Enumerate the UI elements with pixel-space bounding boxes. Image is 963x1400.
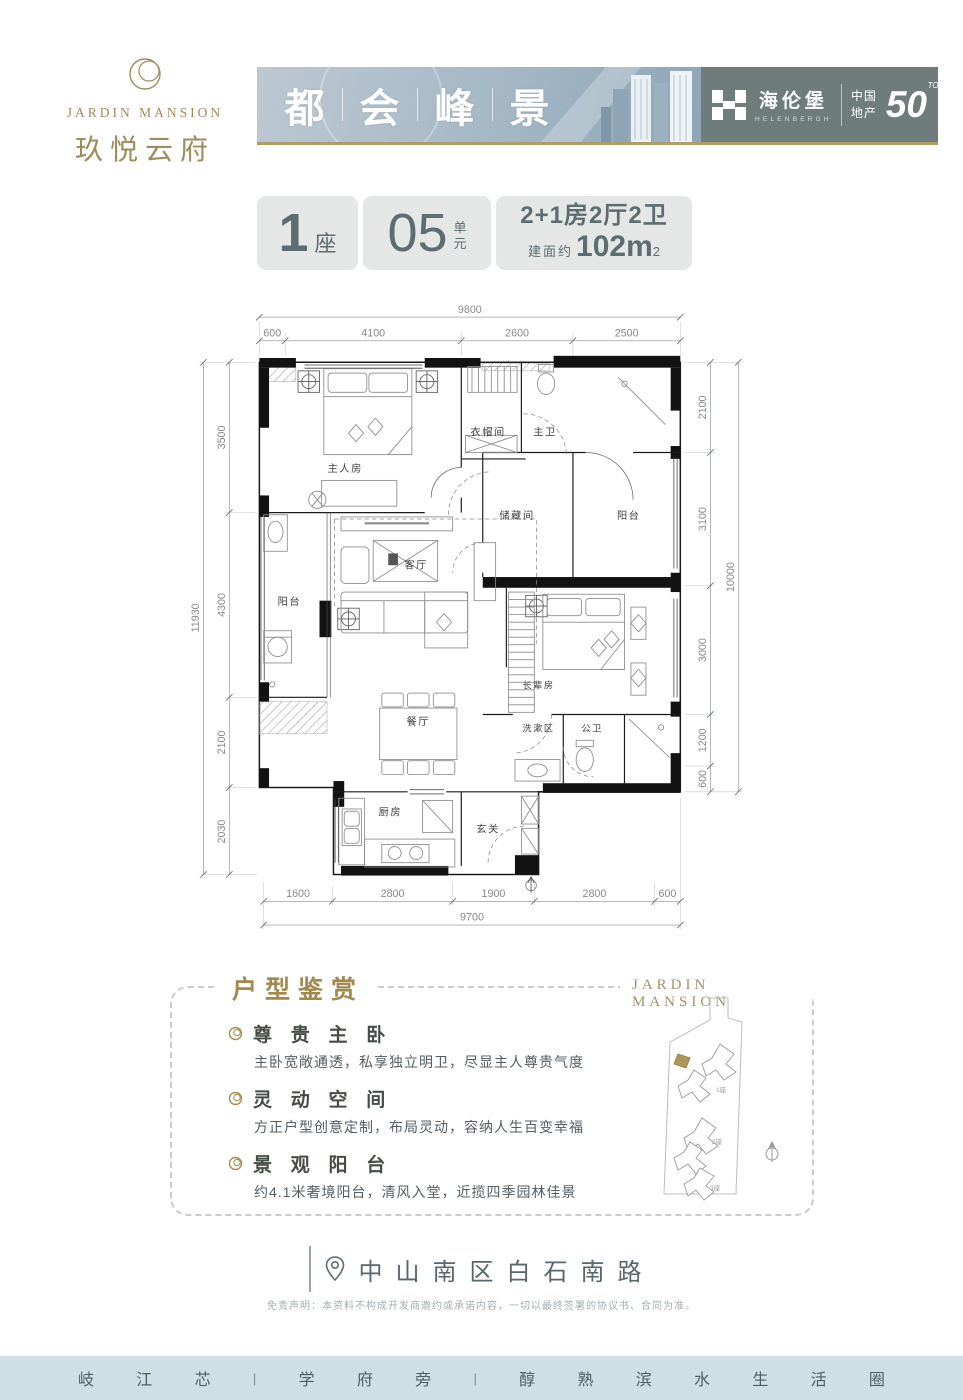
- logo-rings-icon: [122, 54, 168, 96]
- dim-left-total: 11930: [190, 603, 202, 632]
- block-label: 座: [315, 226, 337, 258]
- area-prefix: 建面约: [528, 245, 573, 260]
- room-label-master-bath: 主卫: [533, 426, 557, 438]
- feature-item: 灵 动 空 间 方正户型创意定制，布局灵动，容纳人生百变幸福: [228, 1085, 648, 1137]
- feature-item: 尊 贵 主 卧 主卧宽敞通透，私享独立明卫，尽显主人尊贵气度: [228, 1020, 648, 1072]
- address-text: 中山南区白石南路: [359, 1252, 655, 1287]
- unit-label: 单 元: [454, 220, 467, 253]
- disclaimer: 免责声明：本资料不构成开发商邀约或承诺内容，一切以最终签署的协议书、合同为准。: [0, 1297, 963, 1312]
- feature-desc: 约4.1米奢境阳台，清风入堂，近揽四季园林佳景: [254, 1182, 648, 1202]
- dim-top-total: 9800: [458, 304, 482, 316]
- dim-top-seg: 2600: [505, 328, 529, 340]
- dim-right-seg: 3100: [697, 507, 709, 531]
- dim-bottom-seg: 600: [658, 888, 676, 900]
- room-label-elder: 长辈房: [522, 680, 554, 691]
- feature-heading: 灵 动 空 间: [253, 1085, 392, 1112]
- brand-name-cn: 玖悦云府: [38, 128, 252, 168]
- helenbergh-logo-icon: [712, 88, 746, 122]
- banner-char: 景: [510, 76, 550, 134]
- dim-right-seg: 600: [697, 770, 709, 788]
- dim-left-seg: 3500: [216, 425, 228, 449]
- tagline-char: 圈: [869, 1366, 885, 1390]
- area-line: 建面约 102m 2: [528, 230, 660, 265]
- building-label: 2座: [712, 1137, 723, 1146]
- tagline-char: 芯: [195, 1366, 211, 1390]
- unit-badge: 05 单 元: [363, 196, 491, 270]
- floor-plan: 9800 600 4100 2600 2500 1600 2800 1900 2…: [182, 300, 762, 945]
- dim-bottom-seg: 1900: [482, 888, 506, 900]
- top50-mark: 50 TOP: [886, 86, 927, 123]
- block-badge: 1 座: [257, 196, 358, 270]
- developer-badge: 海伦堡 HELENBERGH 中国 地产 50 TOP: [701, 67, 938, 142]
- tagline-char: 醇: [519, 1366, 535, 1390]
- banner-divider: [342, 88, 343, 121]
- developer-name: 海伦堡 HELENBERGH: [755, 86, 832, 123]
- floor-plan-svg: 9800 600 4100 2600 2500 1600 2800 1900 2…: [182, 300, 762, 940]
- dim-right-seg: 1200: [697, 728, 709, 752]
- banner-char: 会: [360, 76, 400, 134]
- tagline-char: 江: [136, 1366, 152, 1390]
- dim-left-seg: 4300: [216, 593, 228, 617]
- room-label-wash: 洗漱区: [522, 723, 554, 734]
- feature-item: 景 观 阳 台 约4.1米奢境阳台，清风入堂，近揽四季园林佳景: [228, 1150, 648, 1202]
- top50-number: 50: [886, 84, 927, 125]
- badge-cn-line2: 地产: [851, 105, 877, 121]
- feature-desc: 主卧宽敞通透，私享独立明卫，尽显主人尊贵气度: [254, 1052, 648, 1072]
- banner-divider: [417, 88, 418, 121]
- dim-left-seg: 2100: [216, 730, 228, 754]
- banner-char: 都: [285, 76, 325, 134]
- developer-name-cn: 海伦堡: [755, 86, 832, 113]
- address-divider: [309, 1246, 311, 1292]
- dim-bottom-seg: 2800: [381, 888, 405, 900]
- unit-number: 05: [387, 206, 447, 260]
- dim-right-total: 10000: [725, 562, 737, 592]
- gold-rule: [257, 142, 938, 145]
- feature-list: 尊 贵 主 卧 主卧宽敞通透，私享独立明卫，尽显主人尊贵气度 灵 动 空 间 方…: [228, 1020, 648, 1215]
- dim-bottom-seg: 1600: [286, 888, 310, 900]
- gold-ring-icon: [228, 1091, 243, 1106]
- unit-info-row: 1 座 05 单 元 2+1房2厅2卫 建面约 102m 2: [257, 196, 692, 270]
- appreciation-box: 户型鉴赏 JARDIN MANSION 尊 贵 主 卧 主卧宽敞通透，私享独立明…: [170, 986, 814, 1216]
- gold-ring-icon: [228, 1026, 243, 1041]
- room-label-storage: 储藏间: [499, 509, 534, 522]
- room-label-living: 客厅: [404, 558, 428, 571]
- dim-top-seg: 600: [263, 328, 281, 340]
- address-row: 中山南区白石南路: [0, 1246, 963, 1292]
- badge-divider: [841, 84, 842, 126]
- dim-bottom-seg: 2800: [582, 888, 606, 900]
- room-label-master: 主人房: [328, 462, 363, 475]
- tagline-char: 活: [811, 1366, 827, 1390]
- area-exponent: 2: [653, 245, 660, 260]
- block-number: 1: [278, 206, 308, 260]
- layout-text: 2+1房2厅2卫: [520, 202, 667, 230]
- site-plan: 1座 2座 3座: [624, 992, 800, 1206]
- tagline-separator: |: [473, 1371, 476, 1386]
- room-label-guest-bath: 公卫: [582, 724, 603, 734]
- feature-heading: 尊 贵 主 卧: [253, 1020, 392, 1047]
- tagline-char: 府: [357, 1366, 373, 1390]
- room-label-dining: 餐厅: [407, 715, 431, 728]
- tagline-char: 水: [694, 1366, 710, 1390]
- building-label: 3座: [710, 1183, 721, 1192]
- tagline-bar: 岐 江 芯 | 学 府 旁 | 醇 熟 滨 水 生 活 圈: [0, 1356, 963, 1400]
- developer-name-en: HELENBERGH: [755, 116, 832, 123]
- top50-label: TOP: [928, 82, 944, 90]
- tagline-char: 熟: [577, 1366, 593, 1390]
- layout-area-badge: 2+1房2厅2卫 建面约 102m 2: [496, 196, 692, 270]
- tagline-char: 旁: [415, 1366, 431, 1390]
- banner: 都会峰景: [257, 67, 701, 142]
- location-pin-icon: [324, 1255, 346, 1283]
- feature-heading: 景 观 阳 台: [253, 1150, 392, 1177]
- flyer-page: JARDIN MANSION 玖悦云府 都会峰景 海伦堡 HELENBERGH: [0, 0, 963, 1400]
- dim-top-seg: 4100: [361, 328, 385, 340]
- room-label-foyer: 玄关: [476, 823, 500, 836]
- room-label-balcony-left: 阳台: [278, 595, 302, 608]
- brand-name-en: JARDIN MANSION: [38, 105, 252, 121]
- area-value: 102m: [576, 230, 653, 265]
- banner-title: 都会峰景: [257, 67, 577, 142]
- feature-desc: 方正户型创意定制，布局灵动，容纳人生百变幸福: [254, 1117, 648, 1137]
- banner-char: 峰: [435, 76, 475, 134]
- dim-bottom-total: 9700: [460, 912, 484, 924]
- dim-right-seg: 2100: [697, 395, 709, 419]
- badge-cn-line1: 中国: [851, 88, 877, 104]
- tagline-char: 学: [299, 1366, 315, 1390]
- room-label-balcony-right: 阳台: [617, 509, 641, 522]
- dim-left-seg: 2030: [216, 820, 228, 844]
- dim-top-seg: 2500: [615, 328, 639, 340]
- gold-ring-icon: [228, 1156, 243, 1171]
- tagline-char: 滨: [636, 1366, 652, 1390]
- dim-right-seg: 3000: [697, 638, 709, 662]
- compass-icon: [766, 1142, 778, 1162]
- tagline-char: 岐: [78, 1366, 94, 1390]
- room-label-kitchen: 厨房: [379, 805, 403, 818]
- banner-divider: [492, 88, 493, 121]
- highlighted-building-marker: [674, 1054, 690, 1068]
- tagline-char: 生: [752, 1366, 768, 1390]
- building-label: 1座: [716, 1085, 727, 1094]
- badge-cn-text: 中国 地产: [851, 88, 877, 120]
- tagline-separator: |: [253, 1371, 256, 1386]
- room-label-cloak: 衣帽间: [470, 425, 505, 438]
- appreciation-title: 户型鉴赏: [218, 970, 378, 1006]
- brand-logo-block: JARDIN MANSION 玖悦云府: [38, 54, 252, 168]
